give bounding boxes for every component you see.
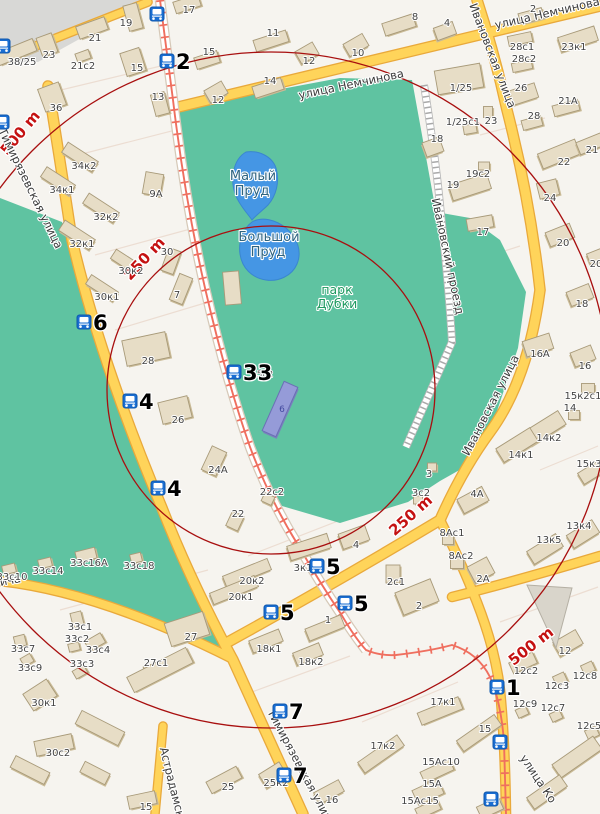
bus-stop[interactable]: [0, 39, 10, 53]
map-canvas[interactable]: 500 m250 m250 m500 mулица Немчиноваулица…: [0, 0, 600, 814]
bus-windshield: [153, 9, 162, 15]
building-number: 14: [264, 76, 277, 87]
building-number: 3с2: [412, 488, 430, 499]
building-number: 33с9: [18, 663, 43, 674]
bus-windshield: [280, 770, 289, 776]
building-number: 13: [152, 92, 165, 103]
building-number: 30к2: [118, 266, 143, 277]
building-number: 26: [172, 415, 185, 426]
building-number: 1: [325, 615, 331, 626]
building-number: 18к2: [298, 657, 323, 668]
building-number: 25: [222, 782, 235, 793]
building-number: 24А: [208, 465, 228, 476]
building-number: 28с2: [512, 54, 537, 65]
building-number: 7: [174, 290, 180, 301]
building-number: 10: [352, 48, 365, 59]
building-number: 20к2: [239, 576, 264, 587]
building-number: 28: [528, 111, 541, 122]
building-number: 22: [232, 509, 245, 520]
building-number: 4: [353, 540, 359, 551]
building-number: 12: [303, 56, 316, 67]
bus-stop-number: 4: [139, 390, 154, 414]
bus-windshield: [163, 56, 172, 62]
building-number: 23: [43, 50, 56, 61]
building-number: 28: [142, 356, 155, 367]
building-number: 1/25: [450, 83, 472, 94]
building-number: 33с18: [124, 561, 155, 572]
building-number: 15: [203, 47, 216, 58]
building-number: 30с2: [46, 748, 71, 759]
building-number: 34к2: [71, 161, 96, 172]
building-number: 19с2: [466, 169, 491, 180]
bus-stop-number: 2: [176, 50, 191, 74]
building-number: 17: [477, 227, 490, 238]
building-number: 16: [579, 361, 592, 372]
bus-windshield: [230, 367, 239, 373]
building-number: 17: [183, 5, 196, 16]
building-number: 15Ас15: [401, 796, 439, 807]
park-building: [223, 271, 242, 305]
bus-windshield: [154, 483, 163, 489]
building-number: 16: [326, 795, 339, 806]
building-number: 21А: [558, 96, 578, 107]
pond-label: Пруд: [235, 184, 270, 199]
bus-stop-number: 4: [167, 477, 182, 501]
building-number: 17к2: [370, 741, 395, 752]
building-number: 30к1: [31, 698, 56, 709]
building-number: 33с14: [33, 566, 64, 577]
building-number: 8Ас2: [448, 551, 473, 562]
bus-windshield: [487, 794, 496, 800]
bus-windshield: [126, 396, 135, 402]
building-number: 32к2: [93, 212, 118, 223]
bus-stop[interactable]: [484, 792, 498, 806]
building-number: 21: [586, 145, 599, 156]
bus-windshield: [493, 682, 502, 688]
building-number: 24: [544, 193, 557, 204]
building-number: 33с3: [70, 659, 95, 670]
building-number: 27с1: [144, 658, 169, 669]
building-number: 9А: [149, 189, 162, 200]
building-number: 20: [590, 259, 600, 270]
bus-stop-number: 5: [354, 592, 369, 616]
building-number: 20: [557, 238, 570, 249]
building-number: 2А: [476, 574, 489, 585]
building-number: 13к5: [536, 535, 561, 546]
building-number: 16А: [530, 349, 550, 360]
building-number: 20к1: [228, 592, 253, 603]
pond-label: Пруд: [251, 245, 286, 260]
building-number: 18: [576, 299, 589, 310]
building-number: 15: [140, 802, 153, 813]
building-number: 19: [120, 18, 133, 29]
bus-stop-number: 7: [293, 764, 308, 788]
building-number: 36: [50, 103, 63, 114]
building-number: 12: [212, 95, 225, 106]
building-number: 2: [530, 4, 536, 15]
building-number: 21с2: [71, 61, 96, 72]
bus-windshield: [313, 561, 322, 567]
building-number: 6: [279, 405, 285, 415]
pond-label: Большой: [238, 230, 299, 245]
bus-windshield: [267, 607, 276, 613]
bus-stop-number: 7: [289, 700, 304, 724]
bus-stop[interactable]: [150, 7, 164, 21]
building-number: 33с16А: [70, 558, 108, 569]
building-number: 22с2: [260, 487, 285, 498]
building-number: 15: [131, 63, 144, 74]
building-number: 21: [89, 33, 102, 44]
building-number: 19: [447, 180, 460, 191]
building-number: 23к1: [561, 42, 586, 53]
bus-stop-number: 1: [506, 676, 521, 700]
building-number: 12с5: [577, 721, 600, 732]
building-number: 12с7: [541, 703, 566, 714]
building-number: 22: [558, 157, 571, 168]
building-number: 26: [515, 83, 528, 94]
building-number: 4А: [470, 489, 483, 500]
building-number: 15Ас10: [422, 757, 460, 768]
building-number: 13к4: [566, 521, 591, 532]
building-number: 12с3: [545, 681, 570, 692]
map-viewport[interactable]: 500 m250 m250 m500 mулица Немчиноваулица…: [0, 0, 600, 814]
building-number: 4: [444, 18, 450, 29]
building-number: 8Ас1: [439, 528, 464, 539]
building-number: 2: [416, 601, 422, 612]
building-number: 17к1: [430, 697, 455, 708]
bus-stop-number: 33: [243, 361, 272, 385]
bus-windshield: [496, 737, 505, 743]
building-number: 14: [564, 403, 577, 414]
bus-windshield: [80, 317, 89, 323]
bus-stop[interactable]: [493, 735, 507, 749]
building-number: 15А: [422, 779, 442, 790]
building-number: 23: [485, 116, 498, 127]
bus-stop-number: 5: [280, 601, 295, 625]
building-number: 11: [267, 28, 280, 39]
building-number: 14к2: [536, 433, 561, 444]
building-number: 18к1: [256, 644, 281, 655]
building-number: 27: [185, 632, 198, 643]
building-number: 15: [479, 724, 492, 735]
building-number: 12: [559, 646, 572, 657]
bus-stop[interactable]: [0, 115, 9, 129]
building-number: 12с9: [513, 699, 538, 710]
building-number: 15к3: [576, 459, 600, 470]
building-number: 33с10: [0, 572, 27, 583]
building-number: 30: [161, 247, 174, 258]
building-number: 2с1: [387, 577, 405, 588]
building-number: 14к1: [508, 450, 533, 461]
building-number: 32к1: [69, 239, 94, 250]
park-label: Дубки: [317, 296, 358, 311]
building-number: 12с8: [573, 671, 598, 682]
building-number: 33с4: [86, 645, 111, 656]
bus-windshield: [0, 41, 8, 47]
bus-windshield: [0, 117, 7, 123]
bus-stop-number: 6: [93, 311, 108, 335]
building-number: 38/25: [8, 57, 37, 68]
building-number: 34к1: [49, 185, 74, 196]
building-number: 33с1: [68, 622, 93, 633]
bus-windshield: [276, 706, 285, 712]
pond-label: Малый: [230, 169, 276, 184]
building-number: 1/25с1: [446, 117, 480, 128]
park-label: парк: [321, 282, 353, 297]
building-number: 8: [412, 12, 418, 23]
building-number: 3: [426, 469, 432, 480]
building-number: 15к2с1: [565, 391, 600, 402]
building-number: 28с1: [510, 42, 535, 53]
building-number: 33с2: [65, 634, 90, 645]
building-number: 18: [431, 134, 444, 145]
building-number: 30к1: [94, 292, 119, 303]
building-number: 33с7: [11, 644, 36, 655]
bus-stop-number: 5: [326, 555, 341, 579]
bus-windshield: [341, 598, 350, 604]
